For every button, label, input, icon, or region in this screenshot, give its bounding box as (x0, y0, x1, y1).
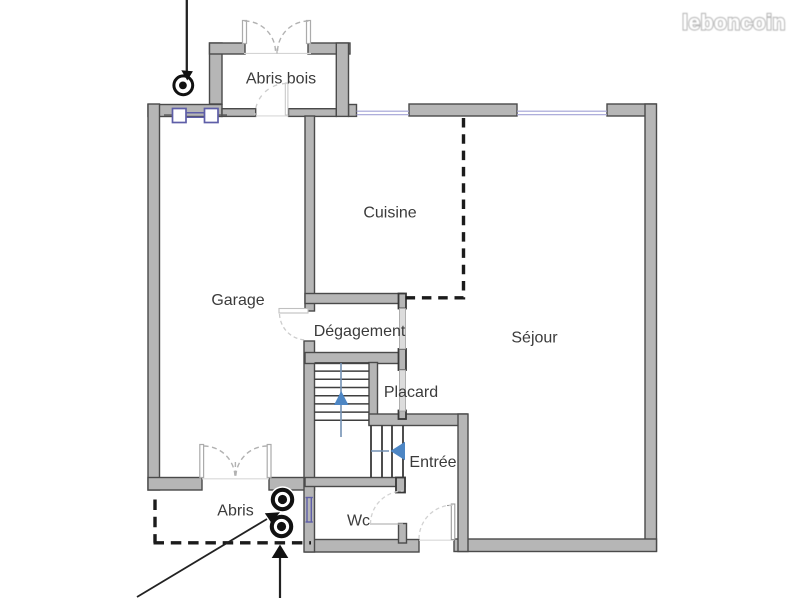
svg-text:Abris bois: Abris bois (246, 71, 316, 88)
svg-text:Abris: Abris (217, 503, 253, 520)
svg-text:Cuisine: Cuisine (363, 205, 416, 222)
svg-text:Entrée: Entrée (409, 454, 456, 471)
svg-text:Wc: Wc (347, 513, 370, 530)
svg-text:Séjour: Séjour (511, 330, 558, 347)
svg-text:Dégagement: Dégagement (314, 323, 406, 340)
svg-text:leboncoin: leboncoin (682, 12, 786, 35)
svg-text:Placard: Placard (384, 384, 438, 401)
svg-text:Garage: Garage (211, 292, 264, 309)
